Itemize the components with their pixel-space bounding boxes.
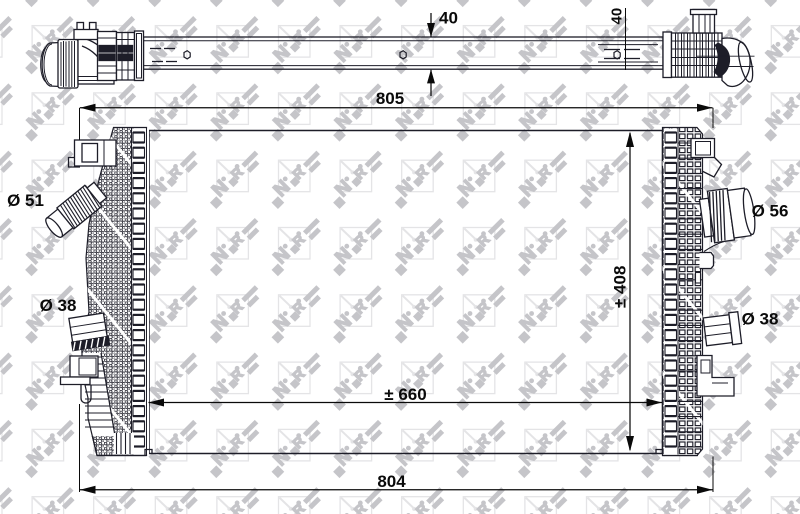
svg-text:Ø 51: Ø 51 [7,191,44,210]
svg-text:± 408: ± 408 [611,266,630,308]
svg-text:Ø 56: Ø 56 [752,202,789,221]
svg-text:Ø 38: Ø 38 [742,310,779,329]
svg-text:804: 804 [377,472,406,491]
svg-text:± 660: ± 660 [384,385,426,404]
svg-text:40: 40 [609,8,626,25]
svg-text:40: 40 [439,9,458,28]
svg-text:Ø 38: Ø 38 [40,296,77,315]
svg-text:805: 805 [376,89,404,108]
